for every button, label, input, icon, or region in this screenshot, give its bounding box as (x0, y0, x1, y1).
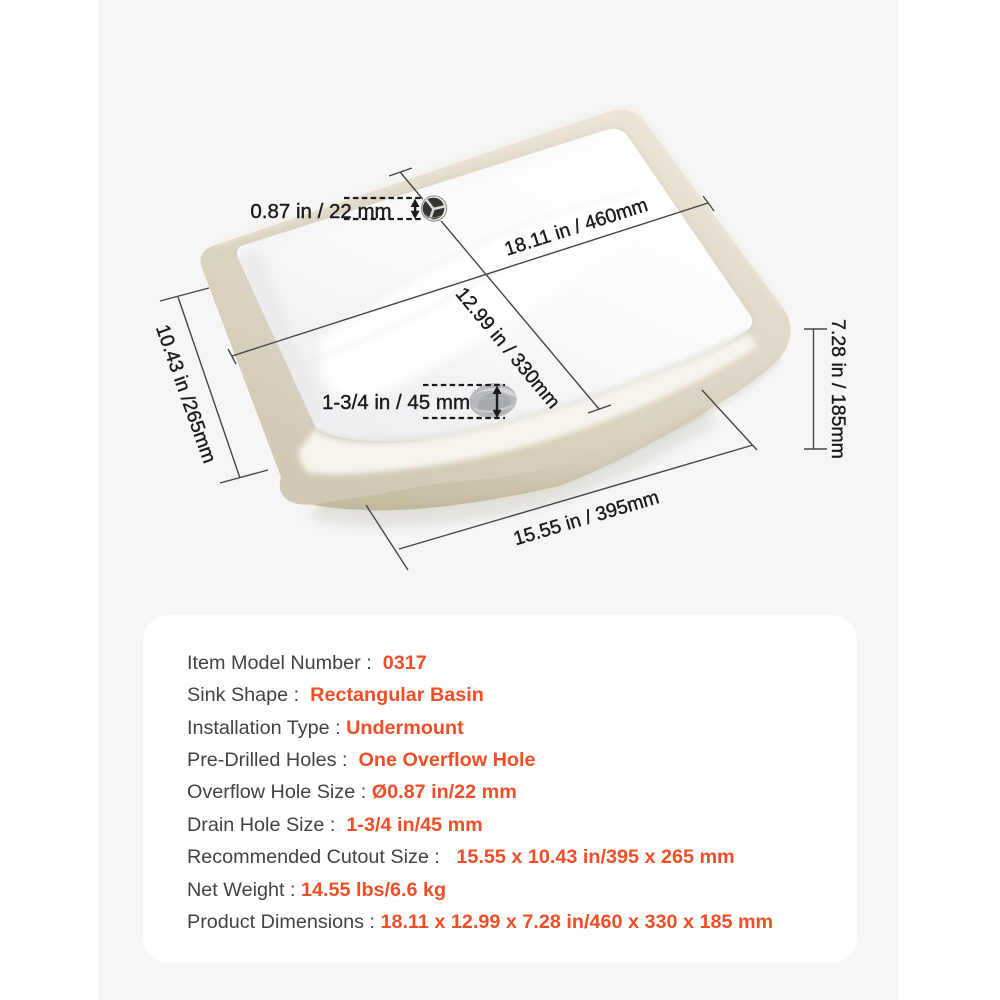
svg-text:0.87 in / 22 mm: 0.87 in / 22 mm (250, 200, 391, 223)
svg-text:7.28 in / 185mm: 7.28 in / 185mm (827, 319, 849, 459)
svg-text:10.43 in /265mm: 10.43 in /265mm (151, 322, 220, 466)
svg-text:1-3/4 in / 45 mm: 1-3/4 in / 45 mm (322, 391, 470, 414)
